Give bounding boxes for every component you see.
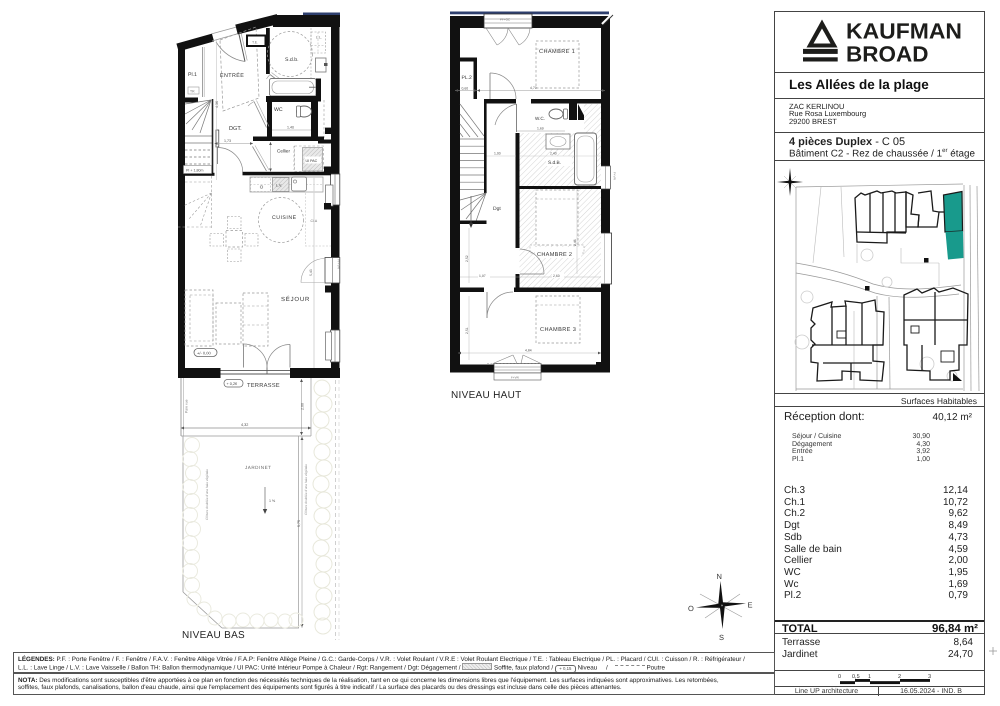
svg-text:NIVEAU HAUT: NIVEAU HAUT bbox=[451, 390, 522, 401]
svg-text:CHAMBRE 2: CHAMBRE 2 bbox=[537, 252, 572, 258]
svg-text:1 %: 1 % bbox=[269, 499, 276, 503]
svg-text:TERRASSE: TERRASSE bbox=[247, 382, 280, 389]
svg-text:UI PAC: UI PAC bbox=[306, 159, 318, 163]
svg-text:TR: TR bbox=[190, 90, 195, 94]
svg-text:KAUFMAN: KAUFMAN bbox=[846, 18, 962, 43]
svg-text:1,97: 1,97 bbox=[479, 274, 486, 278]
svg-text:2,46: 2,46 bbox=[573, 239, 577, 246]
svg-text:4,32: 4,32 bbox=[241, 423, 248, 427]
svg-text:F+VR: F+VR bbox=[613, 172, 617, 181]
svg-text:S.d.b.: S.d.b. bbox=[285, 57, 299, 63]
svg-text:DGT.: DGT. bbox=[229, 126, 242, 132]
svg-text:S.d.B.: S.d.B. bbox=[548, 160, 561, 166]
svg-text:WC: WC bbox=[274, 107, 283, 113]
svg-text:T.E.: T.E. bbox=[252, 41, 258, 45]
svg-text:2,60: 2,60 bbox=[553, 274, 560, 278]
svg-text:0,60: 0,60 bbox=[462, 87, 469, 91]
svg-text:CHAMBRE 3: CHAMBRE 3 bbox=[540, 327, 576, 333]
svg-text:CHAMBRE 1: CHAMBRE 1 bbox=[539, 49, 575, 55]
svg-text:BROAD: BROAD bbox=[846, 41, 929, 66]
svg-text:+ 0,26: + 0,26 bbox=[227, 382, 238, 386]
svg-text:SÉJOUR: SÉJOUR bbox=[281, 295, 310, 303]
svg-text:F+VR: F+VR bbox=[511, 376, 520, 380]
svg-text:4,79: 4,79 bbox=[530, 86, 537, 90]
svg-text:Clôture doublée d'une haie vég: Clôture doublée d'une haie végétale bbox=[205, 469, 209, 520]
svg-text:4,36: 4,36 bbox=[215, 101, 219, 108]
svg-text:4,84: 4,84 bbox=[525, 349, 532, 353]
svg-text:W.C.: W.C. bbox=[535, 116, 545, 121]
svg-text:O: O bbox=[688, 604, 694, 613]
svg-text:PI + 1,80m: PI + 1,80m bbox=[186, 169, 203, 173]
svg-text:5,75: 5,75 bbox=[297, 520, 301, 527]
svg-text:1,73: 1,73 bbox=[224, 139, 231, 143]
svg-text:Dgt: Dgt bbox=[493, 206, 501, 212]
svg-text:0: 0 bbox=[838, 674, 841, 680]
svg-text:2,00: 2,00 bbox=[301, 403, 305, 410]
svg-text:1,69: 1,69 bbox=[537, 127, 544, 131]
svg-text:1,40: 1,40 bbox=[287, 126, 294, 130]
svg-text:E: E bbox=[748, 601, 753, 610]
svg-text:PL.2: PL.2 bbox=[462, 75, 473, 81]
svg-text:2,40: 2,40 bbox=[550, 152, 557, 156]
svg-text:+/- 0,00: +/- 0,00 bbox=[197, 351, 211, 356]
svg-text:2,51: 2,51 bbox=[465, 327, 469, 334]
svg-text:L.V.: L.V. bbox=[276, 184, 282, 188]
svg-text:N: N bbox=[717, 572, 722, 581]
svg-text:PF+GC: PF+GC bbox=[500, 18, 511, 22]
svg-text:Cellier: Cellier bbox=[277, 149, 290, 154]
svg-text:S: S bbox=[719, 633, 724, 642]
svg-text:CUISINE: CUISINE bbox=[272, 215, 297, 221]
svg-text:5,43: 5,43 bbox=[309, 269, 313, 276]
svg-text:2,52: 2,52 bbox=[465, 255, 469, 262]
svg-text:Pl.1: Pl.1 bbox=[188, 72, 197, 78]
svg-text:JARDINET: JARDINET bbox=[245, 465, 271, 470]
svg-text:NIVEAU BAS: NIVEAU BAS bbox=[182, 630, 245, 641]
svg-text:ENTRÉE: ENTRÉE bbox=[220, 72, 244, 79]
svg-text:L.L.: L.L. bbox=[316, 36, 322, 40]
svg-text:1,00: 1,00 bbox=[494, 152, 501, 156]
svg-text:PF+VR: PF+VR bbox=[337, 259, 341, 270]
svg-text:Clôture doublée d'une haie vég: Clôture doublée d'une haie végétale bbox=[304, 464, 308, 515]
svg-text:Pare vue: Pare vue bbox=[185, 399, 189, 413]
